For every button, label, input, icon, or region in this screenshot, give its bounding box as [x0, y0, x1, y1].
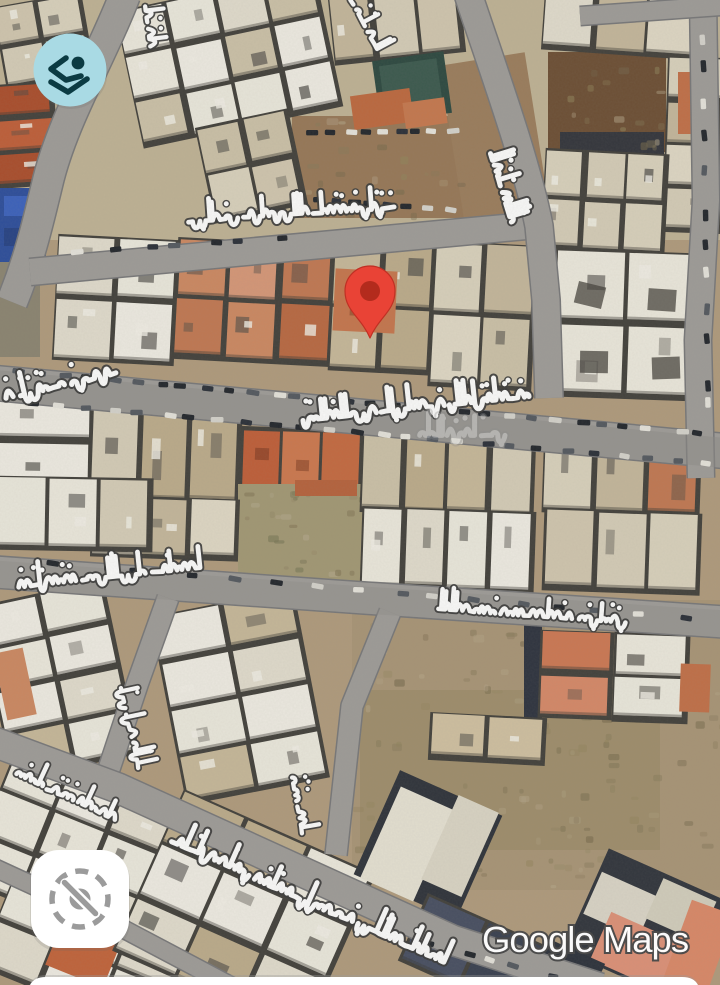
svg-text:Google Maps: Google Maps: [482, 919, 688, 960]
